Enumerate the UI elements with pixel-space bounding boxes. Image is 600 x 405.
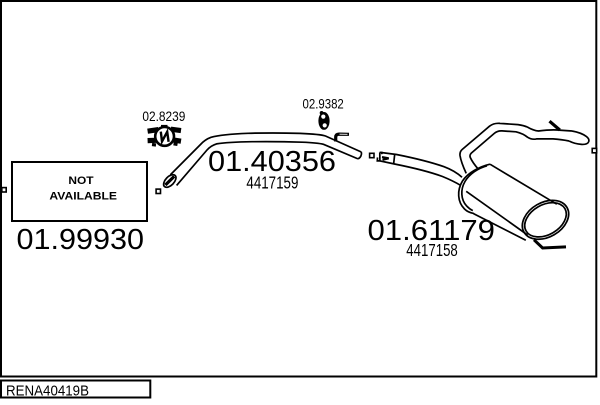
svg-text:02.8239: 02.8239 <box>142 109 185 124</box>
svg-text:01.99930: 01.99930 <box>17 224 145 256</box>
svg-text:AVAILABLE: AVAILABLE <box>49 191 117 203</box>
svg-text:02.9382: 02.9382 <box>303 97 344 112</box>
svg-text:NOT: NOT <box>68 175 93 187</box>
svg-text:4417159: 4417159 <box>246 173 298 193</box>
svg-text:RENA40419B: RENA40419B <box>6 382 89 399</box>
svg-text:4417158: 4417158 <box>406 240 458 260</box>
